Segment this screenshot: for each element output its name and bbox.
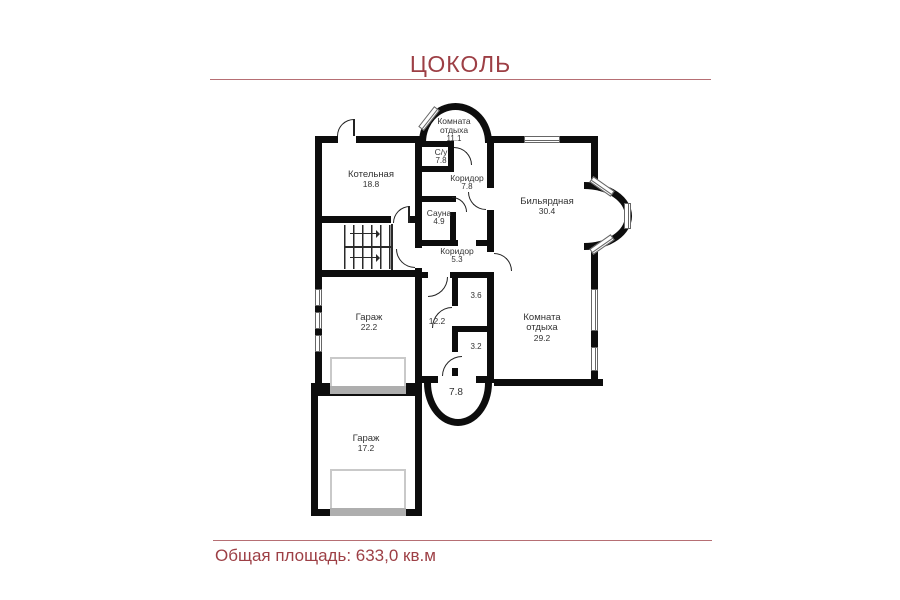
wall xyxy=(476,376,494,383)
room-label-3-6: 3.6 xyxy=(470,292,481,301)
garage-door-sill xyxy=(330,386,406,394)
stairs-landing-line xyxy=(344,246,392,248)
wall xyxy=(311,383,318,516)
wall xyxy=(476,240,494,246)
door-arc xyxy=(452,197,467,212)
garage-door xyxy=(330,357,406,388)
room-label-garage-22-2: Гараж22.2 xyxy=(356,313,383,332)
window xyxy=(315,312,322,329)
room-label-billiard-room: Бильярдная30.4 xyxy=(520,197,573,216)
wall xyxy=(322,216,391,223)
wall xyxy=(356,136,422,143)
room-label-bay-7-8: 7.8 xyxy=(449,388,463,399)
window xyxy=(624,203,631,229)
room-label-boiler-room: Котельная18.8 xyxy=(348,170,394,189)
room-label-12-2: 12.2 xyxy=(429,317,446,326)
floor-plan-page: ЦОКОЛЬ xyxy=(0,0,900,600)
footer-divider xyxy=(213,540,712,541)
room-label-rest-room-11-1: Комнатаотдыха11.1 xyxy=(437,117,470,144)
room-label-corridor-7-8: Коридор7.8 xyxy=(450,174,484,192)
wall xyxy=(422,376,438,383)
wall xyxy=(422,196,456,202)
door-arc xyxy=(454,147,472,165)
wall xyxy=(452,278,458,306)
door-leaf xyxy=(353,119,355,136)
window xyxy=(315,335,322,352)
window xyxy=(524,136,560,143)
wall xyxy=(315,136,322,396)
stairs-direction-arrow xyxy=(350,257,378,258)
total-area-label: Общая площадь: 633,0 кв.м xyxy=(215,546,436,566)
wall xyxy=(322,270,415,277)
door-arc xyxy=(337,119,354,136)
window xyxy=(591,289,598,331)
door-arc xyxy=(494,253,512,271)
wall xyxy=(452,326,494,332)
door-arc xyxy=(428,277,448,297)
garage-door-sill xyxy=(330,508,406,516)
stairs-direction-arrow xyxy=(350,233,378,234)
room-label-wc: С/у7.8 xyxy=(435,148,448,166)
window xyxy=(591,347,598,371)
door-arc xyxy=(396,249,415,268)
stairs-edge-line xyxy=(391,224,393,270)
window xyxy=(315,289,322,306)
wall xyxy=(487,143,494,188)
room-label-corridor-5-3: Коридор5.3 xyxy=(440,247,474,265)
garage-door xyxy=(330,469,406,511)
room-label-3-2: 3.2 xyxy=(470,343,481,352)
wall xyxy=(489,136,524,143)
wall xyxy=(415,136,422,248)
page-title: ЦОКОЛЬ xyxy=(210,51,711,78)
title-divider xyxy=(210,79,711,80)
door-leaf xyxy=(408,206,410,223)
room-label-sauna: Сауна4.9 xyxy=(427,209,452,227)
room-label-garage-17-2: Гараж17.2 xyxy=(353,434,380,453)
bay-arch-bottom xyxy=(424,376,492,426)
wall xyxy=(422,166,454,172)
wall xyxy=(494,379,603,386)
door-arc xyxy=(468,192,486,210)
room-label-rest-room-29-2: Комнатаотдыха29.2 xyxy=(523,313,560,343)
door-arc xyxy=(442,356,462,376)
